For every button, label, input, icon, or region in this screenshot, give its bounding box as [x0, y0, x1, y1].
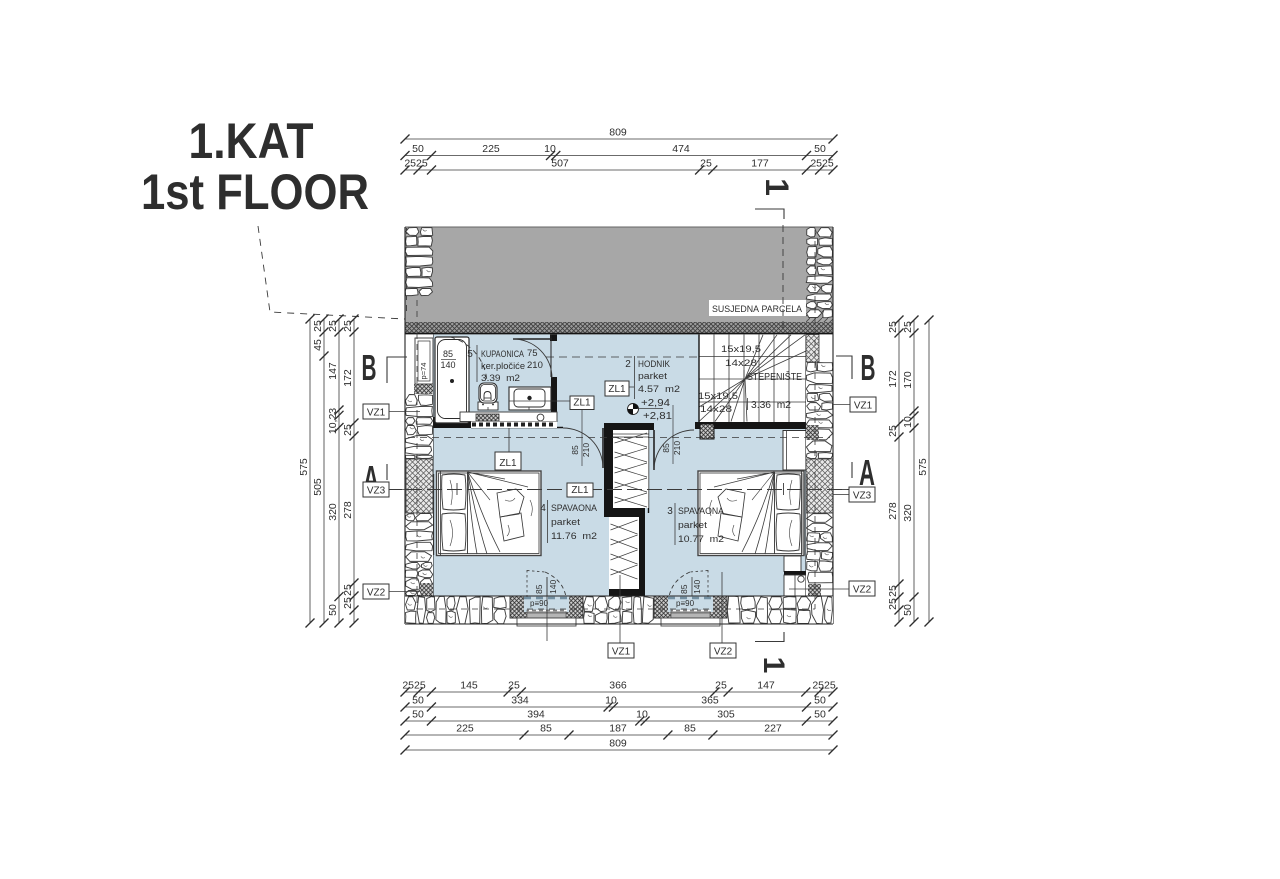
svg-text:10: 10: [605, 695, 617, 707]
svg-text:parket: parket: [551, 517, 580, 528]
svg-text:14x28: 14x28: [725, 358, 757, 369]
svg-text:45: 45: [312, 339, 324, 351]
svg-text:334: 334: [511, 695, 529, 707]
svg-text:25: 25: [342, 584, 354, 596]
svg-text:10,23: 10,23: [327, 408, 339, 434]
svg-text:4.57 m2: 4.57 m2: [638, 384, 680, 395]
svg-text:3.36 m2: 3.36 m2: [751, 400, 791, 411]
svg-text:25: 25: [342, 320, 354, 332]
svg-text:10.77 m2: 10.77 m2: [678, 534, 724, 545]
svg-text:2: 2: [625, 359, 631, 370]
svg-text:2525: 2525: [812, 680, 836, 692]
svg-text:147: 147: [757, 680, 775, 692]
svg-text:25: 25: [312, 320, 324, 332]
svg-text:85: 85: [661, 443, 671, 453]
svg-text:ZL1: ZL1: [608, 384, 626, 395]
svg-text:10: 10: [636, 709, 648, 721]
svg-text:172: 172: [887, 370, 899, 388]
svg-text:1: 1: [757, 657, 790, 674]
svg-text:14x28: 14x28: [700, 404, 732, 415]
svg-text:25: 25: [700, 158, 712, 170]
svg-text:85: 85: [679, 584, 689, 594]
svg-text:VZ3: VZ3: [853, 491, 872, 502]
svg-text:1.KAT: 1.KAT: [189, 113, 314, 169]
svg-text:VZ2: VZ2: [853, 585, 872, 596]
svg-text:p≡90: p≡90: [530, 599, 549, 608]
svg-text:505: 505: [312, 478, 324, 496]
svg-text:25: 25: [887, 598, 899, 610]
svg-text:575: 575: [917, 458, 929, 476]
svg-text:10: 10: [902, 416, 914, 428]
svg-text:140: 140: [548, 580, 558, 594]
svg-text:50: 50: [814, 143, 826, 155]
svg-text:11.76 m2: 11.76 m2: [551, 531, 597, 542]
svg-text:85: 85: [570, 445, 580, 455]
svg-text:4: 4: [540, 503, 546, 514]
svg-text:187: 187: [609, 723, 627, 735]
svg-text:3.39 m2: 3.39 m2: [481, 373, 520, 384]
svg-text:+2,94: +2,94: [641, 398, 670, 409]
svg-text:2525: 2525: [404, 158, 428, 170]
svg-text:VZ1: VZ1: [367, 408, 386, 419]
svg-text:VZ1: VZ1: [854, 401, 873, 412]
svg-text:50: 50: [814, 709, 826, 721]
svg-text:227: 227: [764, 723, 782, 735]
svg-text:SPAVAONA: SPAVAONA: [551, 503, 598, 514]
svg-text:50: 50: [902, 604, 914, 616]
svg-text:3: 3: [667, 506, 673, 517]
svg-text:50: 50: [412, 695, 424, 707]
svg-text:15x19,5: 15x19,5: [698, 391, 738, 402]
svg-text:394: 394: [527, 709, 545, 721]
svg-text:140: 140: [692, 580, 702, 594]
svg-text:85: 85: [540, 723, 552, 735]
svg-text:278: 278: [342, 501, 354, 519]
svg-text:809: 809: [609, 738, 627, 750]
svg-text:145: 145: [460, 680, 478, 692]
svg-text:474: 474: [672, 143, 690, 155]
svg-text:147: 147: [327, 362, 339, 380]
svg-text:365: 365: [701, 695, 719, 707]
svg-text:177: 177: [751, 158, 769, 170]
svg-text:25: 25: [887, 425, 899, 437]
svg-text:parket: parket: [638, 371, 667, 382]
svg-text:VZ1: VZ1: [612, 647, 631, 658]
svg-text:VZ2: VZ2: [714, 647, 733, 658]
svg-text:ZL1: ZL1: [571, 485, 589, 496]
svg-text:HODNIK: HODNIK: [638, 359, 671, 370]
svg-text:B: B: [362, 347, 377, 388]
svg-text:1st FLOOR: 1st FLOOR: [141, 164, 369, 220]
svg-text:5: 5: [467, 349, 473, 360]
svg-text:25: 25: [887, 321, 899, 333]
svg-text:+2,81: +2,81: [643, 411, 672, 422]
svg-text:170: 170: [902, 371, 914, 389]
svg-text:85: 85: [443, 349, 453, 359]
svg-text:parket: parket: [678, 520, 707, 531]
svg-text:1: 1: [759, 178, 795, 196]
svg-text:225: 225: [482, 143, 500, 155]
svg-text:2525: 2525: [402, 680, 426, 692]
svg-text:575: 575: [298, 458, 310, 476]
svg-text:50: 50: [814, 695, 826, 707]
svg-text:p≡90: p≡90: [676, 599, 695, 608]
svg-text:210: 210: [527, 360, 543, 371]
svg-text:320: 320: [327, 503, 339, 521]
svg-text:25: 25: [342, 597, 354, 609]
svg-text:25: 25: [342, 424, 354, 436]
svg-text:75: 75: [527, 348, 538, 359]
svg-text:STEPENIŠTE: STEPENIŠTE: [747, 370, 802, 383]
svg-text:SUSJEDNA PARCELA: SUSJEDNA PARCELA: [712, 304, 803, 315]
svg-text:15x19,5: 15x19,5: [721, 344, 761, 355]
svg-text:85: 85: [684, 723, 696, 735]
svg-text:ZL1: ZL1: [499, 458, 517, 469]
svg-text:85: 85: [534, 584, 544, 594]
svg-text:B: B: [861, 347, 876, 388]
svg-text:50: 50: [327, 604, 339, 616]
svg-text:25: 25: [508, 680, 520, 692]
svg-text:25: 25: [887, 585, 899, 597]
svg-text:278: 278: [887, 502, 899, 520]
svg-text:2525: 2525: [810, 158, 834, 170]
svg-text:172: 172: [342, 369, 354, 387]
svg-text:210: 210: [581, 443, 591, 457]
svg-text:ZL1: ZL1: [573, 398, 591, 409]
svg-text:225: 225: [456, 723, 474, 735]
svg-text:10: 10: [544, 143, 556, 155]
svg-text:25: 25: [902, 321, 914, 333]
svg-text:25: 25: [715, 680, 727, 692]
svg-text:VZ3: VZ3: [367, 486, 386, 497]
svg-text:305: 305: [717, 709, 735, 721]
svg-text:366: 366: [609, 680, 627, 692]
svg-text:507: 507: [551, 158, 569, 170]
svg-text:50: 50: [412, 143, 424, 155]
svg-text:320: 320: [902, 504, 914, 522]
svg-text:210: 210: [672, 441, 682, 455]
svg-text:809: 809: [609, 127, 627, 139]
svg-text:25: 25: [327, 320, 339, 332]
svg-text:50: 50: [412, 709, 424, 721]
svg-text:VZ2: VZ2: [367, 588, 386, 599]
svg-text:SPAVAONA: SPAVAONA: [678, 506, 725, 517]
svg-text:KUPAONICA: KUPAONICA: [481, 349, 525, 360]
svg-text:p=74: p=74: [419, 363, 428, 380]
svg-text:ker.pločiće: ker.pločiće: [481, 361, 525, 372]
svg-text:140: 140: [440, 360, 455, 370]
